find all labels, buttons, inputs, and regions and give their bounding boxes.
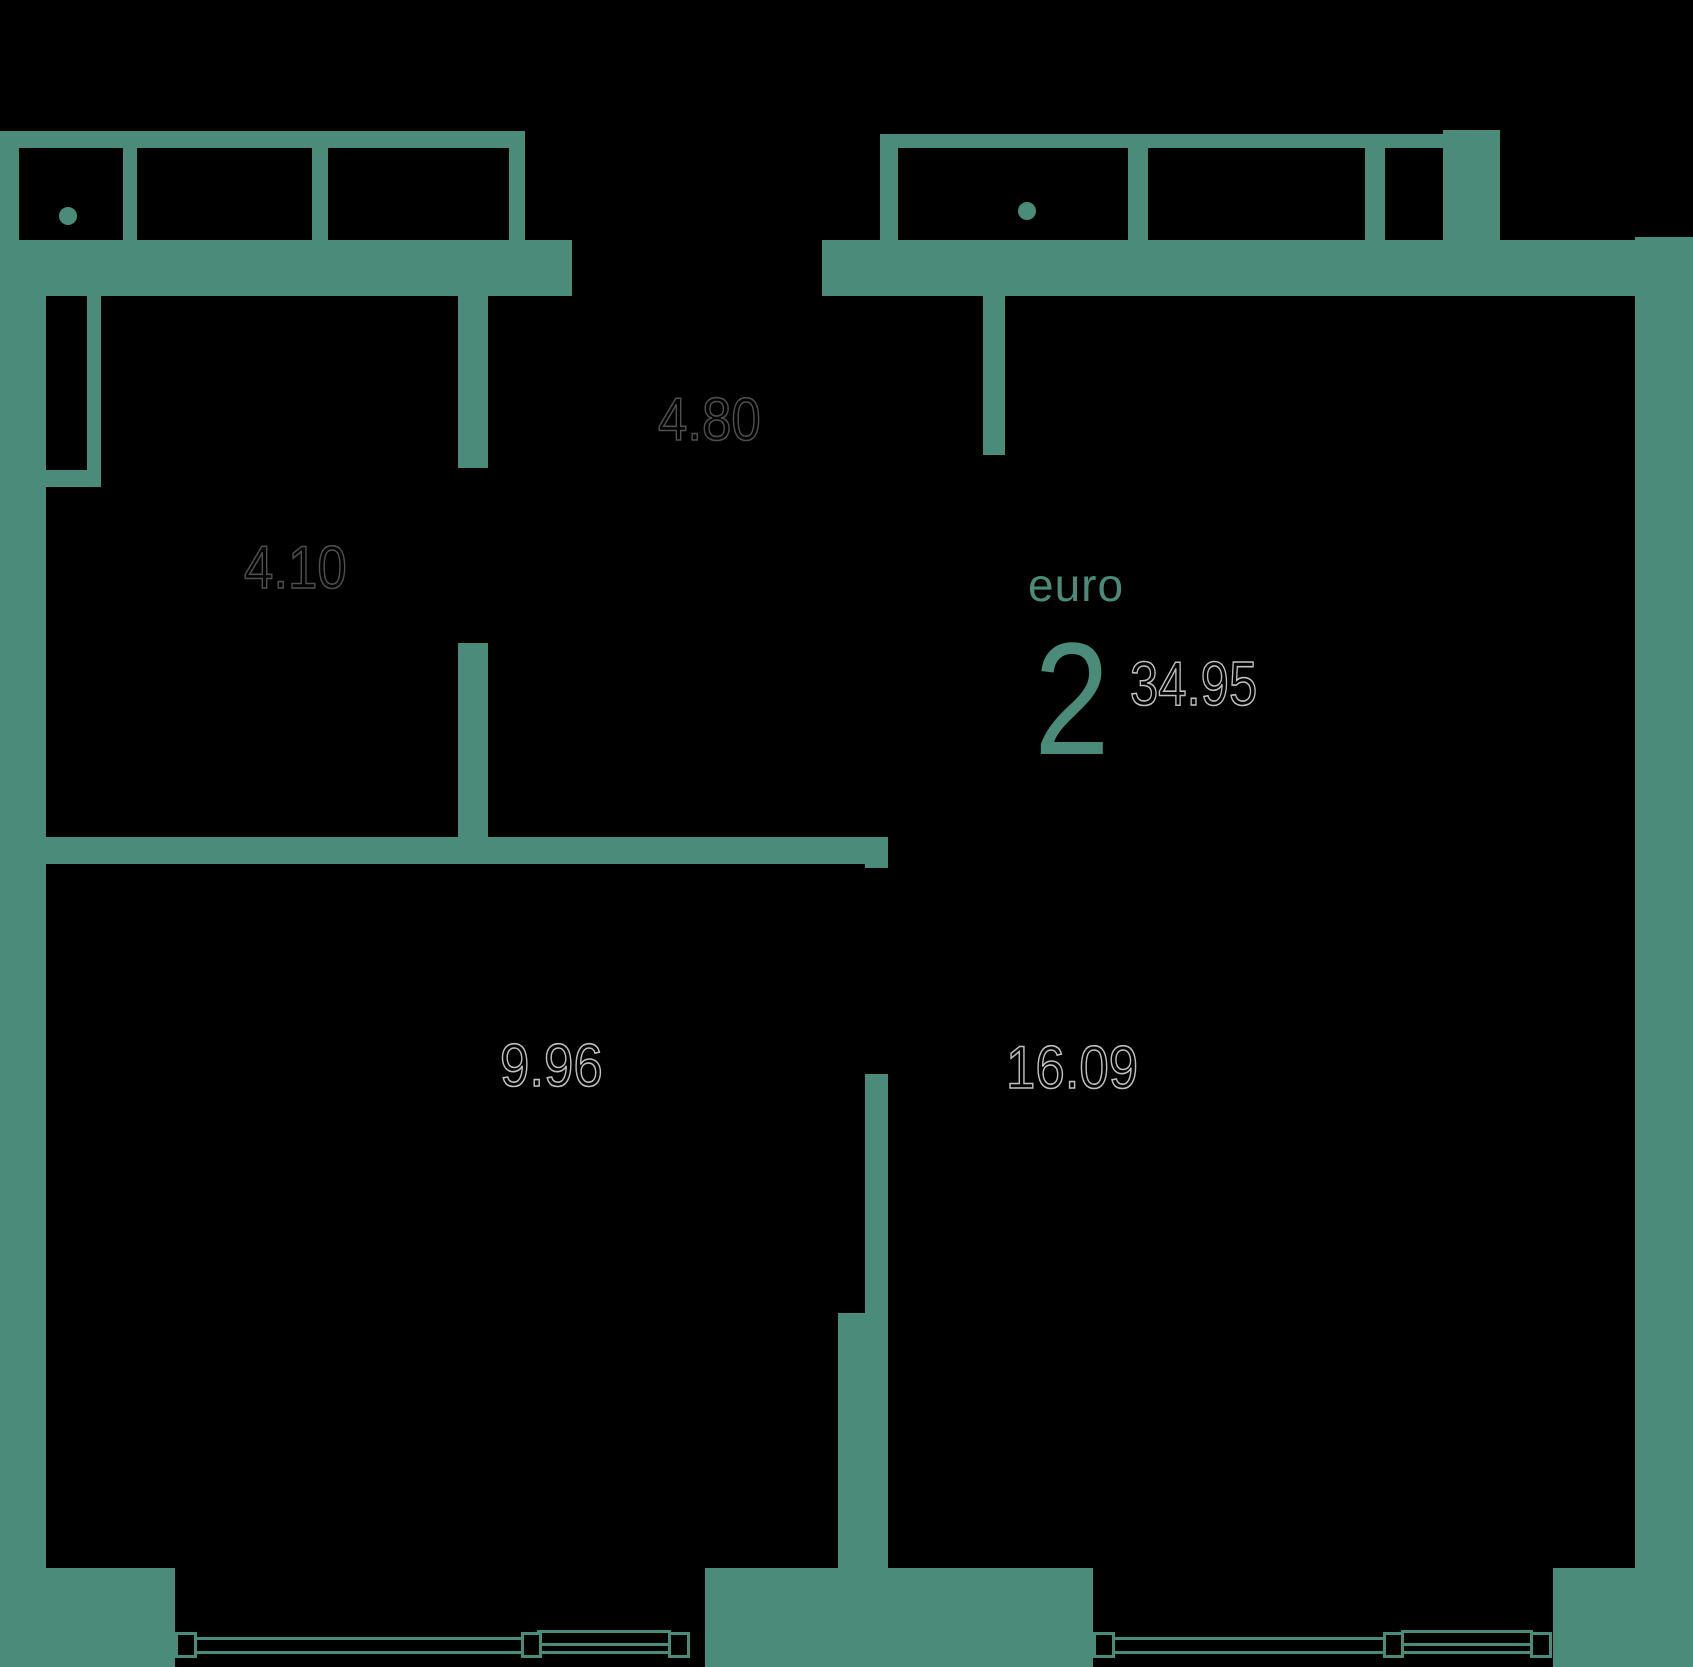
right-balcony-post-dot xyxy=(1018,202,1036,220)
center-wall-lower xyxy=(838,1313,888,1600)
right-balcony-right-wall xyxy=(1443,130,1500,240)
bottom-wall-right-corner xyxy=(1553,1568,1693,1667)
left-balcony-left-edge xyxy=(0,131,19,243)
top-wall-left-segment xyxy=(0,240,572,296)
right-window-end-block-left xyxy=(1093,1632,1115,1658)
floor-plan: 4.80 4.10 9.96 16.09 euro 2 34.95 xyxy=(0,0,1693,1667)
left-window-sash xyxy=(537,1630,671,1646)
hallway-stub-wall xyxy=(983,296,1005,455)
right-balcony-mullion-2 xyxy=(1365,148,1385,240)
left-balcony-mullion-2 xyxy=(312,148,328,240)
room-label-hallway: 4.80 xyxy=(658,390,761,450)
room-label-living-kitchen: 16.09 xyxy=(1006,1038,1138,1098)
room-label-bathroom: 4.10 xyxy=(244,538,347,598)
bathroom-right-wall-upper xyxy=(458,296,488,468)
left-window-mid-block xyxy=(521,1632,542,1658)
right-balcony-rail xyxy=(880,134,1443,148)
bedroom-top-wall xyxy=(46,837,865,864)
exterior-wall-right xyxy=(1635,237,1693,1667)
duct-niche-cap xyxy=(46,470,101,487)
left-balcony-rail xyxy=(0,131,525,148)
bathroom-right-wall-lower xyxy=(458,643,488,864)
left-window-end-block-left xyxy=(175,1632,197,1658)
right-window-mid-block xyxy=(1383,1632,1404,1658)
top-wall-right-segment xyxy=(822,240,1635,296)
bottom-wall-center xyxy=(705,1568,1093,1667)
right-window-sash xyxy=(1401,1630,1533,1646)
left-balcony-right-wall xyxy=(509,148,525,243)
center-wall-upper xyxy=(865,1074,888,1313)
unit-rooms-count: 2 xyxy=(1034,619,1110,779)
left-window-end-block-right xyxy=(668,1632,690,1658)
right-balcony-mullion-1 xyxy=(1128,148,1148,240)
right-window-end-block-right xyxy=(1530,1632,1552,1658)
exterior-wall-left xyxy=(0,240,46,1667)
right-balcony-left-wall xyxy=(880,148,898,240)
room-label-bedroom: 9.96 xyxy=(500,1036,603,1096)
unit-type-label: euro xyxy=(1028,562,1124,608)
left-balcony-mullion-1 xyxy=(123,148,137,240)
bedroom-top-wall-cap xyxy=(865,837,888,868)
left-balcony-post-dot xyxy=(59,207,77,225)
duct-niche-strip xyxy=(87,296,101,487)
unit-total-area: 34.95 xyxy=(1130,654,1257,716)
bottom-wall-left-corner xyxy=(0,1568,175,1667)
